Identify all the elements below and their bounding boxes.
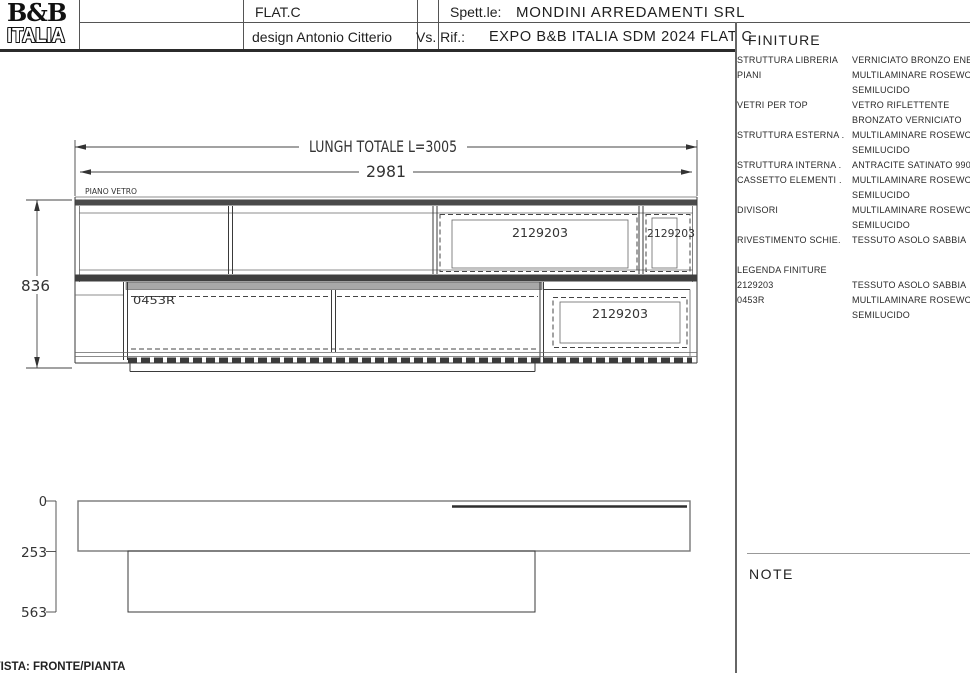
finiture-row-value: TESSUTO ASOLO SABBIA [852, 235, 970, 245]
logo-line1: B&B [7, 1, 79, 25]
dim-height-label: 836 [21, 277, 50, 295]
finiture-row-label: DIVISORI [737, 205, 852, 215]
finiture-row-value: TESSUTO ASOLO SABBIA [852, 280, 970, 290]
finiture-row: STRUTTURA INTERNA . ANTRACITE SATINATO 9… [737, 160, 970, 175]
finish-code-fabric: 2129203 [512, 226, 568, 240]
front-view: PIANO VETRO 212 [75, 187, 697, 372]
finiture-row-value: BRONZATO VERNICIATO [852, 115, 970, 125]
finiture-row: CASSETTO ELEMENTI . MULTILAMINARE ROSEWO… [737, 175, 970, 190]
finiture-row [737, 250, 970, 265]
finiture-row-value: SEMILUCIDO [852, 310, 970, 320]
reference-value: EXPO B&B ITALIA SDM 2024 FLAT C [489, 29, 753, 45]
finish-code-fabric: 2129203 [592, 307, 648, 321]
finiture-row: SEMILUCIDO [737, 145, 970, 160]
logo-line2: ITALIA [7, 26, 73, 46]
header-grid-line [243, 0, 244, 49]
designer-credit: design Antonio Citterio [252, 29, 392, 45]
finish-code-fabric: 2129203 [647, 227, 695, 240]
fabric-panel-upper-wide: 2129203 [440, 215, 637, 272]
header-grid-line [79, 0, 80, 49]
finiture-row-label: VETRI PER TOP [737, 100, 852, 110]
finiture-row-value: SEMILUCIDO [852, 220, 970, 230]
product-name: FLAT.C [255, 4, 301, 20]
finiture-title: FINITURE [748, 32, 821, 48]
dimension-height: 836 [18, 200, 72, 368]
finiture-row-value: ANTRACITE SATINATO 9907 [852, 160, 970, 170]
finiture-row: 0453R MULTILAMINARE ROSEWOOD [737, 295, 970, 310]
finiture-row-label: STRUTTURA ESTERNA . [737, 130, 852, 140]
plan-depth-scale: 0 253 563 [21, 495, 56, 621]
finiture-row-value: MULTILAMINARE ROSEWOOD [852, 205, 970, 215]
finiture-row-value: MULTILAMINARE ROSEWOOD [852, 130, 970, 140]
dim-inner-label: 2981 [366, 162, 406, 181]
header-bottom-rule [0, 49, 737, 52]
finiture-row-label: PIANI [737, 70, 852, 80]
note-title: NOTE [749, 566, 794, 582]
finiture-row-value: MULTILAMINARE ROSEWOOD [852, 175, 970, 185]
finiture-row-label: STRUTTURA INTERNA . [737, 160, 852, 170]
finiture-row: BRONZATO VERNICIATO [737, 115, 970, 130]
finiture-rows: STRUTTURA LIBRERIA VERNICIATO BRONZO ENE… [737, 55, 970, 325]
finiture-row: VETRI PER TOP VETRO RIFLETTENTE [737, 100, 970, 115]
finiture-row: STRUTTURA LIBRERIA VERNICIATO BRONZO ENE… [737, 55, 970, 70]
finiture-row: LEGENDA FINITURE [737, 265, 970, 280]
bb-italia-logo: B&B ITALIA [7, 1, 79, 46]
technical-drawing-sheet: LUNGH TOTALE L=3005 2981 836 PIANO VETRO [0, 0, 970, 673]
finiture-row: STRUTTURA ESTERNA . MULTILAMINARE ROSEWO… [737, 130, 970, 145]
finiture-row: SEMILUCIDO [737, 85, 970, 100]
finiture-row: RIVESTIMENTO SCHIE. TESSUTO ASOLO SABBIA [737, 235, 970, 250]
header-grid-line [79, 22, 970, 23]
finiture-row-value: VETRO RIFLETTENTE [852, 100, 970, 110]
finiture-row-value: SEMILUCIDO [852, 145, 970, 155]
finiture-row-label: 2129203 [737, 280, 852, 290]
finish-code-drawer: 0453R [133, 294, 175, 307]
finiture-row: PIANI MULTILAMINARE ROSEWOOD [737, 70, 970, 85]
client-label: Spett.le: [450, 4, 501, 20]
finiture-row: SEMILUCIDO [737, 310, 970, 325]
dim-total-label: LUNGH TOTALE L=3005 [309, 137, 457, 156]
finiture-row: 2129203 TESSUTO ASOLO SABBIA [737, 280, 970, 295]
finiture-row-label: RIVESTIMENTO SCHIE. [737, 235, 852, 245]
plan-tick-563: 563 [21, 606, 47, 621]
plan-tick-253: 253 [21, 546, 47, 561]
finiture-row-label: CASSETTO ELEMENTI . [737, 175, 852, 185]
client-value: MONDINI ARREDAMENTI SRL [516, 4, 745, 21]
finiture-row-label: LEGENDA FINITURE [737, 265, 852, 275]
finiture-row-label: STRUTTURA LIBRERIA [737, 55, 852, 65]
finiture-row: DIVISORI MULTILAMINARE ROSEWOOD [737, 205, 970, 220]
finiture-row-value: SEMILUCIDO [852, 85, 970, 95]
note-divider [747, 553, 970, 554]
view-caption: VISTA: FRONTE/PIANTA [0, 661, 125, 673]
plan-view [78, 501, 690, 612]
dimension-inner-length: 2981 [80, 162, 692, 181]
plan-tick-0: 0 [39, 495, 47, 510]
finiture-row-value: VERNICIATO BRONZO ENEO [852, 55, 970, 65]
finiture-row: SEMILUCIDO [737, 190, 970, 205]
fabric-panel-lower-right: 2129203 [553, 298, 687, 348]
finiture-row-value: MULTILAMINARE ROSEWOOD [852, 295, 970, 305]
finiture-row-label: 0453R [737, 295, 852, 305]
finiture-row-value: MULTILAMINARE ROSEWOOD [852, 70, 970, 80]
finiture-row: SEMILUCIDO [737, 220, 970, 235]
reference-label: Vs. Rif.: [416, 29, 465, 45]
finiture-row-value: SEMILUCIDO [852, 190, 970, 200]
fabric-panel-upper-narrow: 2129203 [646, 215, 695, 272]
glass-top-label: PIANO VETRO [85, 187, 137, 196]
